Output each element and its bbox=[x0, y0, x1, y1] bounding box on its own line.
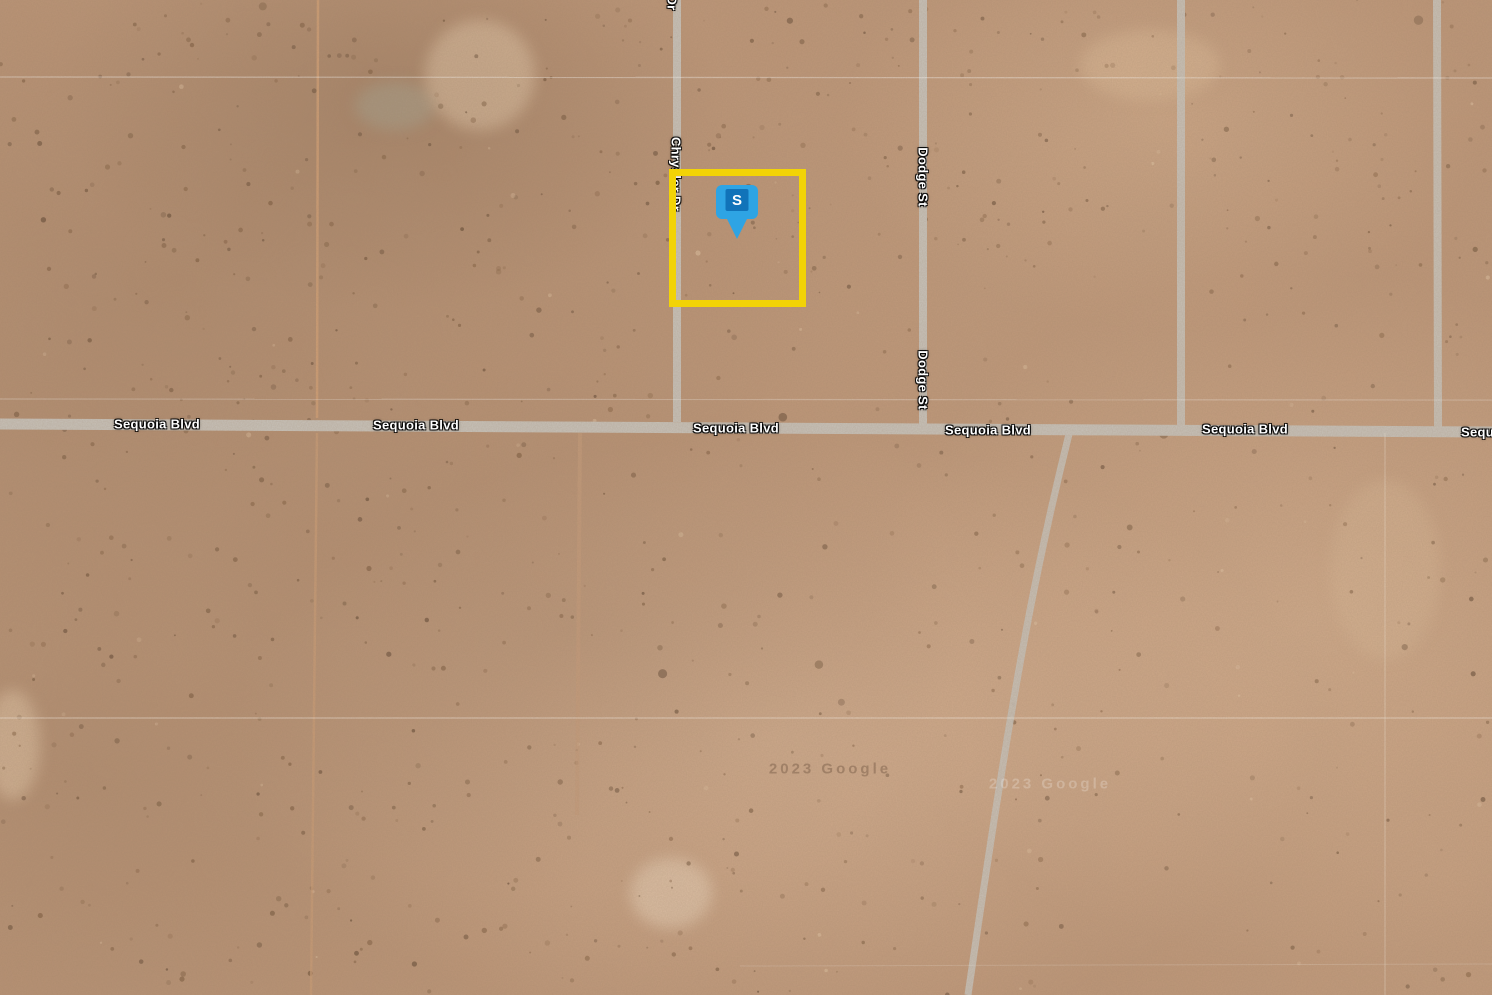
map-pin-letter: S bbox=[732, 192, 742, 209]
map-pin-letter-badge: S bbox=[726, 189, 749, 211]
roads-layer bbox=[0, 0, 1492, 995]
terrain-patch bbox=[355, 82, 435, 130]
road-sequoia-blvd bbox=[0, 424, 1492, 432]
terrain-patch bbox=[1330, 480, 1440, 660]
terrain-noise bbox=[0, 0, 1492, 995]
terrain-patch bbox=[425, 20, 535, 130]
map-pin-marker[interactable]: S bbox=[716, 185, 758, 219]
street-label-sequoia-blvd-1: Sequoia Blvd bbox=[114, 417, 200, 432]
dirt-track-vertical bbox=[311, 433, 317, 995]
google-imagery-watermark: 2023 Google bbox=[769, 761, 891, 778]
map-pin-tail bbox=[726, 217, 748, 239]
parcel-line-horizontal bbox=[0, 399, 1492, 400]
street-label-sequoia-blvd-5: Sequoia Blvd bbox=[1202, 422, 1288, 437]
street-label-sequoia-blvd-2: Sequoia Blvd bbox=[373, 418, 459, 433]
satellite-map-canvas[interactable]: 2023 Google 2023 Google Sequoia Blvd Seq… bbox=[0, 0, 1492, 995]
map-pin-head bbox=[716, 185, 758, 219]
street-label-sequoia-blvd-3: Sequoia Blvd bbox=[693, 421, 779, 436]
parcel-boundary-highlight[interactable] bbox=[669, 169, 806, 307]
terrain-patch bbox=[630, 858, 712, 928]
terrain-patch bbox=[1080, 30, 1220, 100]
street-label-sequoia-blvd-4: Sequoia Blvd bbox=[945, 423, 1031, 438]
parcel-line-horizontal bbox=[740, 964, 1492, 966]
street-label-sequoia-blvd-6-clipped: Sequoia Blvd bbox=[1461, 425, 1492, 440]
street-label-dodge-st-2: Dodge St bbox=[916, 350, 931, 409]
parcel-line-horizontal bbox=[0, 77, 1492, 78]
google-imagery-watermark: 2023 Google bbox=[989, 776, 1111, 793]
terrain-speckles bbox=[0, 0, 1492, 995]
street-label-dodge-st-1: Dodge St bbox=[916, 147, 931, 206]
road-unnamed-2 bbox=[1437, 0, 1438, 427]
street-label-chrysler-dr-top-clipped: Dr bbox=[665, 0, 680, 11]
terrain-patch bbox=[0, 690, 40, 800]
street-label-chrysler-dr: Chrysler Dr bbox=[669, 137, 684, 211]
road-diagonal bbox=[968, 430, 1070, 995]
dirt-trail bbox=[577, 433, 580, 815]
dirt-track-vertical bbox=[317, 0, 318, 418]
